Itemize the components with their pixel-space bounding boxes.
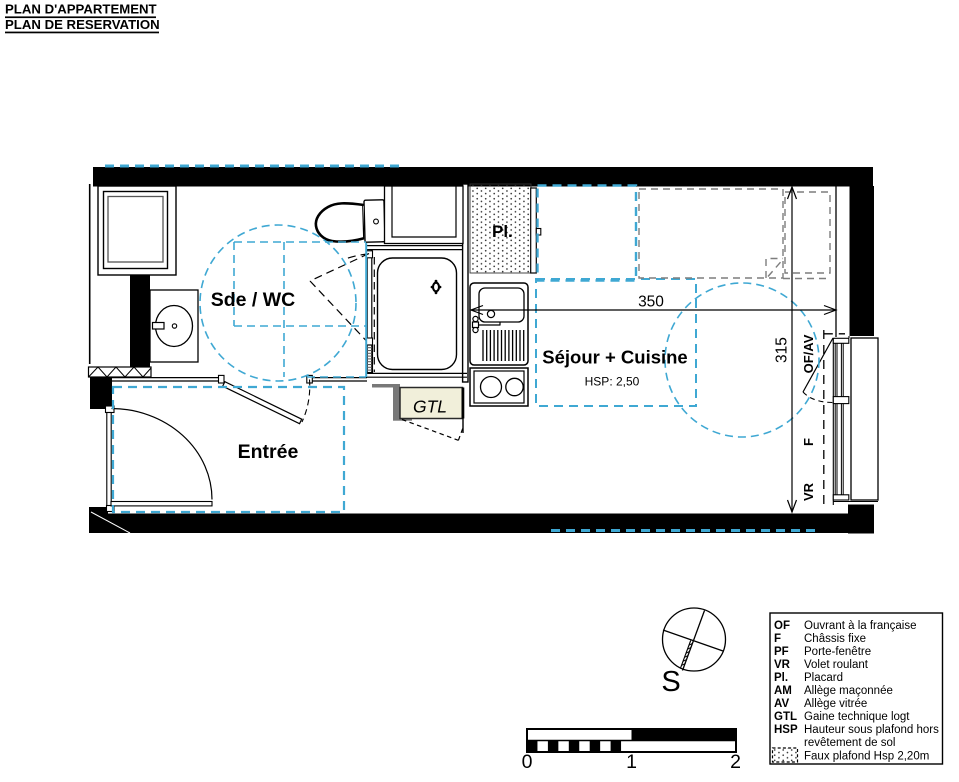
svg-text:F: F <box>774 633 781 645</box>
svg-text:Séjour + Cuisine: Séjour + Cuisine <box>542 347 687 368</box>
svg-text:revêtement de sol: revêtement de sol <box>804 737 895 749</box>
svg-text:AV: AV <box>774 698 789 710</box>
svg-text:PLAN DE RESERVATION: PLAN DE RESERVATION <box>5 17 160 32</box>
svg-text:VR: VR <box>801 482 816 501</box>
svg-text:Faux plafond Hsp 2,20m: Faux plafond Hsp 2,20m <box>804 751 929 763</box>
svg-text:Sde / WC: Sde / WC <box>211 289 296 311</box>
svg-text:Volet roulant: Volet roulant <box>804 659 869 671</box>
svg-text:Entrée: Entrée <box>238 441 299 463</box>
svg-text:2: 2 <box>730 751 741 773</box>
svg-text:315: 315 <box>774 337 791 363</box>
svg-text:350: 350 <box>638 294 664 311</box>
svg-text:Porte-fenêtre: Porte-fenêtre <box>804 646 871 658</box>
svg-text:Placard: Placard <box>804 672 843 684</box>
svg-text:AM: AM <box>774 685 792 697</box>
svg-text:Hauteur sous plafond hors: Hauteur sous plafond hors <box>804 724 939 736</box>
svg-text:Pl.: Pl. <box>774 672 788 684</box>
svg-text:Allège maçonnée: Allège maçonnée <box>804 685 893 697</box>
svg-text:F: F <box>801 438 816 446</box>
svg-text:GTL: GTL <box>774 711 797 723</box>
svg-text:1: 1 <box>626 751 637 773</box>
svg-text:Gaine technique logt: Gaine technique logt <box>804 711 910 723</box>
svg-text:Allège vitrée: Allège vitrée <box>804 698 867 710</box>
svg-text:0: 0 <box>522 751 533 773</box>
svg-text:Pl.: Pl. <box>492 222 513 241</box>
svg-text:Ouvrant à la française: Ouvrant à la française <box>804 620 917 632</box>
svg-text:OF/AV: OF/AV <box>801 334 816 373</box>
svg-text:OF: OF <box>774 620 790 632</box>
svg-text:VR: VR <box>774 659 791 671</box>
svg-text:HSP: 2,50: HSP: 2,50 <box>585 375 640 389</box>
svg-text:PLAN D'APPARTEMENT: PLAN D'APPARTEMENT <box>5 2 157 17</box>
svg-text:HSP: HSP <box>774 724 798 736</box>
svg-text:S: S <box>661 666 680 698</box>
svg-text:PF: PF <box>774 646 789 658</box>
svg-text:GTL: GTL <box>413 397 447 417</box>
svg-text:Châssis fixe: Châssis fixe <box>804 633 866 645</box>
